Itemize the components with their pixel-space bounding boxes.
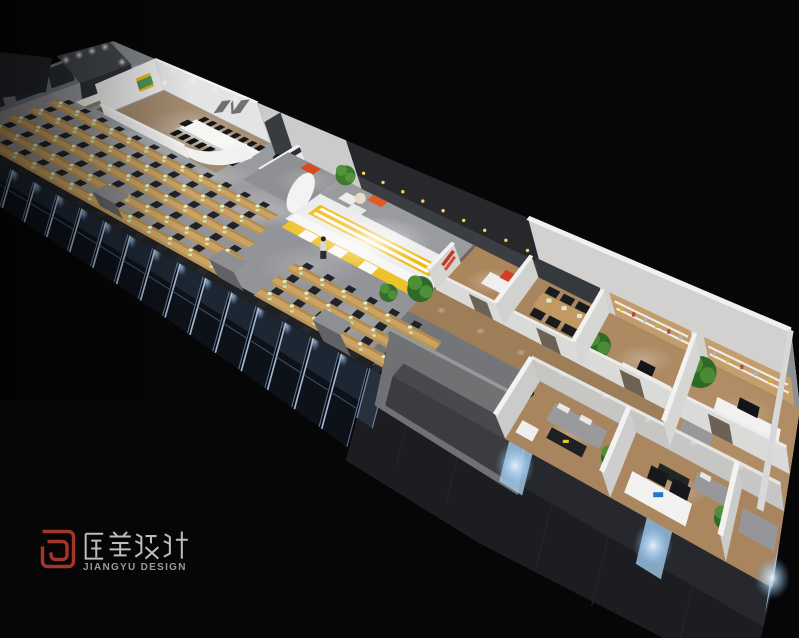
svg-text:JIANGYU DESIGN: JIANGYU DESIGN	[83, 562, 187, 573]
